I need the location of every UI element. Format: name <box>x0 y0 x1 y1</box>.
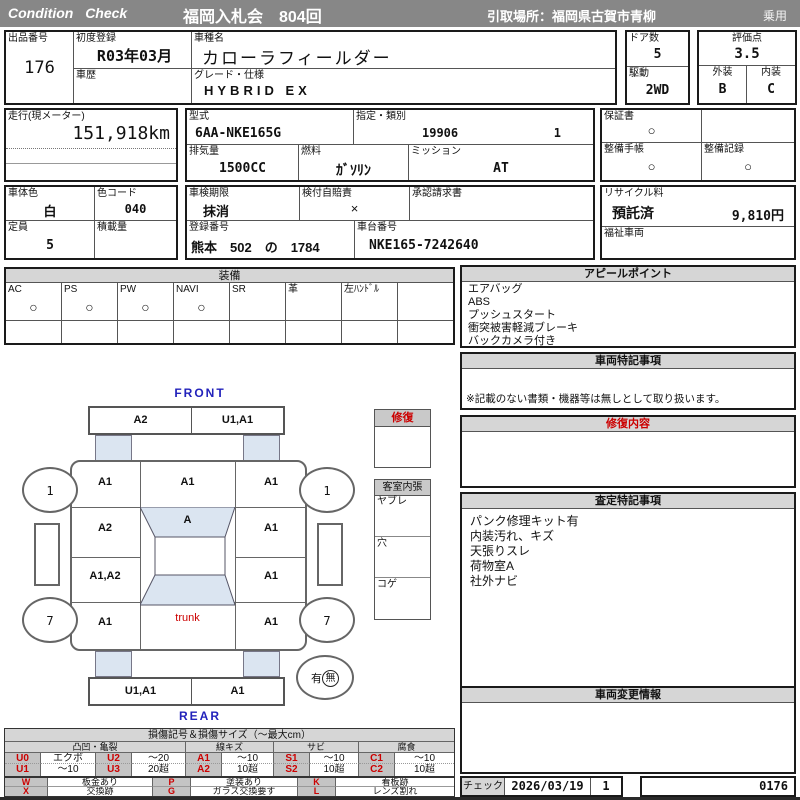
color-code-value: 040 <box>95 202 176 216</box>
body-color-cell: 車体色 白 <box>6 187 95 221</box>
equipment-cell-sr: SR <box>230 283 286 321</box>
front-bumper: A2 U1,A1 <box>88 406 285 435</box>
equipment-empty <box>6 321 62 343</box>
cabin-lining-title: 客室内張 <box>375 480 430 496</box>
legend-value: エクボ <box>41 753 96 764</box>
legend-value: ～10 <box>395 753 454 764</box>
legend-code: S2 <box>274 764 310 776</box>
cabin-row-label: 穴 <box>377 538 387 549</box>
interior-grade: C <box>747 82 795 97</box>
mileage-value: 151,918km <box>72 123 170 144</box>
drive-cell: 駆動 2WD <box>627 67 688 103</box>
reg-no-cell: 登録番号 熊本 502 の 1784 <box>187 221 355 258</box>
cabin-row-label: コゲ <box>377 579 397 590</box>
docs-box: 保証書 ○ 整備手帳 ○ 整備記録 ○ <box>600 108 796 182</box>
color-box: 車体色 白 色コード 040 定員 5 積載量 <box>4 185 178 260</box>
legend-value: 板金あり <box>48 778 153 787</box>
grade-label: グレード・仕様 <box>194 70 264 81</box>
appeal-item: ABS <box>468 296 792 309</box>
legend-value: 塗装あり <box>191 778 298 787</box>
history-label: 車歴 <box>76 70 96 81</box>
legend-value: 交換跡 <box>48 787 153 796</box>
jibaiseki-label: 検付自賠責 <box>302 188 352 199</box>
class-cell: 指定・類別 19906 1 <box>354 110 593 145</box>
legend-group-dent: 凸凹・亀裂 <box>5 742 186 753</box>
brand-logo: Condition Check <box>8 5 127 21</box>
legend-group-corrosion: 腐食 <box>359 742 454 753</box>
chassis-value: NKE165-7242640 <box>369 238 479 253</box>
divider <box>6 163 176 164</box>
assessment-item: パンク修理キット有 <box>470 514 792 529</box>
equipment-box: 装備 AC ○ PS ○ PW ○ NAVI ○ SR 革 左ﾊﾝﾄﾞﾙ <box>4 267 455 345</box>
repair-details-title: 修復内容 <box>462 417 794 432</box>
legend-value: レンズ割れ <box>336 787 454 796</box>
score-value: 3.5 <box>699 46 795 62</box>
legend-value: 10超 <box>310 764 359 776</box>
legend-group-rust: サビ <box>274 742 359 753</box>
body-divider <box>72 557 140 558</box>
inspection-label: 車検期限 <box>189 188 229 199</box>
appeal-item: プッシュスタート <box>468 309 792 322</box>
body-divider <box>236 602 305 603</box>
legend-value: ～10 <box>41 764 96 776</box>
body-divider <box>236 557 305 558</box>
grade-cell: グレード・仕様 HYBRID EX <box>192 69 615 103</box>
legend-code: U2 <box>96 753 132 764</box>
cabin-row-label: ヤブレ <box>377 496 407 507</box>
spare-no-label-circled: 無 <box>322 670 339 687</box>
equipment-label: 革 <box>288 284 298 295</box>
equipment-mark: ○ <box>174 299 229 315</box>
body-color-label: 車体色 <box>8 188 38 199</box>
wheel-front-right-code: 1 <box>323 484 330 498</box>
grade-value: HYBRID EX <box>204 83 311 98</box>
drive-label: 駆動 <box>629 68 649 79</box>
vehicle-notes-footer: ※記載のない書類・機器等は無しとして取り扱います。 <box>466 391 725 406</box>
body-color-value: 白 <box>6 201 94 220</box>
lot-number: 176 <box>6 58 73 78</box>
appeal-list: エアバッグ ABS プッシュスタート 衝突被害軽減ブレーキ バックカメラ付き <box>468 283 792 348</box>
legend-code: L <box>298 787 336 796</box>
legend-code: A2 <box>186 764 222 776</box>
equipment-mark: ○ <box>6 299 61 315</box>
exterior-label: 外装 <box>699 67 746 78</box>
legend-title-row: 損傷記号＆損傷サイズ（～最大cm） <box>5 729 454 742</box>
appeal-item: エアバッグ <box>468 283 792 296</box>
history-cell: 車歴 <box>74 69 192 103</box>
legend-group-row: 凸凹・亀裂 線キズ サビ 腐食 <box>5 742 454 753</box>
title-bar: Condition Check 福岡入札会 804回 引取場所：福岡県古賀市青柳… <box>0 0 800 27</box>
legend-code: U0 <box>5 753 41 764</box>
change-info-panel: 車両変更情報 <box>460 686 796 774</box>
fuel-value: ｶﾞｿﾘﾝ <box>299 160 408 180</box>
maint-record-mark: ○ <box>702 159 794 174</box>
displacement-cell: 排気量 1500CC <box>187 145 299 180</box>
wheel-rear-right: 7 <box>299 597 355 643</box>
assessment-panel: 査定特記事項 パンク修理キット有 内装汚れ、キズ 天張りスレ 荷物室A 社外ナビ <box>460 492 796 688</box>
inspection-cell: 車検期限 抹消 <box>187 187 300 221</box>
fuel-cell: 燃料 ｶﾞｿﾘﾝ <box>299 145 409 180</box>
class-sub: 1 <box>554 126 561 140</box>
vehicle-class: 乗用 <box>763 7 787 24</box>
legend-value: 看板跡 <box>336 778 454 787</box>
lot-label: 出品番号 <box>8 33 48 44</box>
welfare-label: 福祉車両 <box>604 228 644 239</box>
equipment-empty <box>230 321 286 343</box>
score-cell: 評価点 3.5 <box>699 32 795 66</box>
appeal-item: 衝突被害軽減ブレーキ <box>468 322 792 335</box>
capacity-cell: 定員 5 <box>6 221 95 258</box>
warranty-mark: ○ <box>602 123 701 138</box>
load-label: 積載量 <box>97 222 127 233</box>
assessment-list: パンク修理キット有 内装汚れ、キズ 天張りスレ 荷物室A 社外ナビ <box>470 514 792 589</box>
maint-record-cell: 整備記録 ○ <box>702 143 794 180</box>
chassis-cell: 車台番号 NKE165-7242640 <box>355 221 593 258</box>
roof-shape <box>155 537 225 575</box>
check-date: 2026/03/19 <box>505 778 591 795</box>
class-label: 指定・類別 <box>356 111 406 122</box>
body-divider <box>72 507 140 508</box>
wheel-front-right: 1 <box>299 467 355 513</box>
model-code-label: 型式 <box>189 111 209 122</box>
recycle-label: リサイクル料 <box>604 188 664 199</box>
registration-box: 車検期限 抹消 検付自賠責 × 承認請求書 登録番号 熊本 502 の 1784… <box>185 185 595 260</box>
model-label: 車種名 <box>194 33 224 44</box>
vehicle-notes-panel: 車両特記事項 ※記載のない書類・機器等は無しとして取り扱います。 <box>460 352 796 410</box>
color-code-cell: 色コード 040 <box>95 187 176 221</box>
body-divider <box>236 507 305 508</box>
wheel-rear-left: 7 <box>22 597 78 643</box>
legend-code: P <box>153 778 191 787</box>
appeal-title: アピールポイント <box>462 267 794 282</box>
legend-code: G <box>153 787 191 796</box>
windshield-label: A <box>140 514 235 526</box>
legend-code: K <box>298 778 336 787</box>
right-side-guard <box>317 523 343 586</box>
mileage-box: 走行(現メーター) 151,918km <box>4 108 178 182</box>
welfare-cell: 福祉車両 <box>602 227 794 258</box>
divider <box>6 148 176 149</box>
class-no: 19906 <box>422 126 458 140</box>
wheel-rear-right-code: 7 <box>323 614 330 628</box>
repair-flag-title: 修復 <box>375 410 430 427</box>
legend-value: ～10 <box>310 753 359 764</box>
front-bumper-left-panel: A2 <box>90 408 192 433</box>
displacement-label: 排気量 <box>189 146 219 157</box>
cabin-lining-box: 客室内張 ヤブレ 穴 コゲ <box>374 479 431 620</box>
hood-label: A1 <box>140 476 235 488</box>
model-cell: 車種名 カローラフィールダー <box>192 32 615 69</box>
mission-cell: ミッション AT <box>409 145 593 180</box>
left-front-fender-label: A1 <box>70 476 140 488</box>
wheel-front-left: 1 <box>22 467 78 513</box>
warranty-cell: 保証書 ○ <box>602 110 702 143</box>
serial-box: 0176 <box>640 776 796 797</box>
first-reg-label: 初度登録 <box>76 33 116 44</box>
lot-cell: 出品番号 176 <box>6 32 74 103</box>
auction-title: 福岡入札会 804回 <box>183 3 322 27</box>
left-front-door-label: A2 <box>70 522 140 534</box>
check-label: チェック <box>462 778 505 795</box>
legend-value: ～10 <box>222 753 274 764</box>
assessment-title: 査定特記事項 <box>462 494 794 509</box>
interior-label: 内装 <box>747 67 795 78</box>
equipment-label: PW <box>120 284 136 295</box>
maint-book-label: 整備手帳 <box>604 144 644 155</box>
equipment-empty <box>62 321 118 343</box>
equipment-label: 左ﾊﾝﾄﾞﾙ <box>344 284 379 295</box>
drive-value: 2WD <box>627 83 688 98</box>
legend-code: U1 <box>5 764 41 776</box>
equipment-empty <box>174 321 230 343</box>
legend-table-2: W 板金あり P 塗装あり K 看板跡 X 交換跡 G ガラス交換要す L レン… <box>4 777 455 797</box>
cabin-row-hole: 穴 <box>375 536 430 577</box>
rear-bumper-left-panel: U1,A1 <box>90 679 192 704</box>
right-rear-fender-label: A1 <box>235 616 307 628</box>
rear-left-light <box>95 651 132 677</box>
legend-code-row-1: W 板金あり P 塗装あり K 看板跡 <box>5 778 454 787</box>
approval-cell: 承認請求書 <box>410 187 593 221</box>
legend-value: ～20 <box>132 753 186 764</box>
cabin-row-tear: ヤブレ <box>375 495 430 536</box>
legend-value: 10超 <box>395 764 454 776</box>
legend-value: 10超 <box>222 764 274 776</box>
assessment-item: 社外ナビ <box>470 574 792 589</box>
left-side-guard <box>34 523 60 586</box>
exterior-grade: B <box>699 82 746 97</box>
equipment-cell-extra <box>398 283 453 321</box>
legend-table: 損傷記号＆損傷サイズ（～最大cm） 凸凹・亀裂 線キズ サビ 腐食 U0 エクボ… <box>4 728 455 777</box>
equipment-cell-ps: PS ○ <box>62 283 118 321</box>
equipment-title: 装備 <box>6 269 453 283</box>
chassis-label: 車台番号 <box>357 222 397 233</box>
jibaiseki-mark: × <box>300 201 409 216</box>
rear-bumper: U1,A1 A1 <box>88 677 285 706</box>
appeal-item: バックカメラ付き <box>468 335 792 348</box>
legend-code: A1 <box>186 753 222 764</box>
condition-check-sheet: Condition Check 福岡入札会 804回 引取場所：福岡県古賀市青柳… <box>0 0 800 800</box>
spare-tire-indicator: 有無 <box>296 655 354 700</box>
interior-cell: 内装 C <box>747 66 795 103</box>
capacity-label: 定員 <box>8 222 28 233</box>
equipment-cell-pw: PW ○ <box>118 283 174 321</box>
doors-drive-box: ドア数 5 駆動 2WD <box>625 30 690 105</box>
equipment-label: SR <box>232 284 246 295</box>
maint-record-label: 整備記録 <box>704 144 744 155</box>
diagram-front-label: FRONT <box>138 386 262 400</box>
equipment-empty <box>286 321 342 343</box>
right-front-fender-label: A1 <box>235 476 307 488</box>
mileage-label: 走行(現メーター) <box>8 111 85 122</box>
front-bumper-right-panel: U1,A1 <box>192 408 283 433</box>
rear-window-shape <box>140 575 235 605</box>
pickup-location: 引取場所：福岡県古賀市青柳 <box>487 6 656 25</box>
doors-cell: ドア数 5 <box>627 32 688 67</box>
legend-value: ガラス交換要す <box>191 787 298 796</box>
equipment-cell-navi: NAVI ○ <box>174 283 230 321</box>
model-code-value: 6AA-NKE165G <box>195 126 281 141</box>
legend-code: S1 <box>274 753 310 764</box>
capacity-value: 5 <box>6 238 94 253</box>
first-reg-cell: 初度登録 R03年03月 <box>74 32 192 69</box>
recycle-box: リサイクル料 預託済 9,810円 福祉車両 <box>600 185 796 260</box>
left-rear-fender-label: A1 <box>70 616 140 628</box>
first-reg-value: R03年03月 <box>80 45 189 66</box>
legend-code: U3 <box>96 764 132 776</box>
doors-value: 5 <box>627 47 688 62</box>
assessment-item: 内装汚れ、キズ <box>470 529 792 544</box>
legend-code: C2 <box>359 764 395 776</box>
front-left-light <box>95 435 132 461</box>
equipment-cell-ac: AC ○ <box>6 283 62 321</box>
legend-code: X <box>5 787 48 796</box>
rear-bumper-right-panel: A1 <box>192 679 283 704</box>
equipment-mark: ○ <box>62 299 117 315</box>
empty-cell <box>702 110 794 143</box>
warranty-label: 保証書 <box>604 111 634 122</box>
inspection-value: 抹消 <box>203 201 229 220</box>
equipment-empty <box>118 321 174 343</box>
appeal-panel: アピールポイント エアバッグ ABS プッシュスタート 衝突被害軽減ブレーキ バ… <box>460 265 796 348</box>
displacement-value: 1500CC <box>187 161 298 176</box>
legend-value: 20超 <box>132 764 186 776</box>
equipment-label: NAVI <box>176 284 199 295</box>
legend-code-row-2: X 交換跡 G ガラス交換要す L レンズ割れ <box>5 787 454 796</box>
mission-value: AT <box>409 161 593 176</box>
cabin-row-burn: コゲ <box>375 577 430 617</box>
reg-no-value: 熊本 502 の 1784 <box>191 237 320 256</box>
legend-group-scratch: 線キズ <box>186 742 274 753</box>
score-label: 評価点 <box>699 33 795 44</box>
spec-box: 型式 6AA-NKE165G 指定・類別 19906 1 排気量 1500CC … <box>185 108 595 182</box>
equipment-cell-lhd: 左ﾊﾝﾄﾞﾙ <box>342 283 398 321</box>
jibaiseki-cell: 検付自賠責 × <box>300 187 410 221</box>
spare-yes-label: 有 <box>311 673 322 685</box>
recycle-status: 預託済 <box>612 203 654 223</box>
maint-book-mark: ○ <box>602 159 701 174</box>
wheel-front-left-code: 1 <box>46 484 53 498</box>
load-cell: 積載量 <box>95 221 176 258</box>
repair-details-panel: 修復内容 <box>460 415 796 488</box>
recycle-fee: 9,810円 <box>732 205 784 224</box>
rear-right-light <box>243 651 280 677</box>
legend-code: W <box>5 778 48 787</box>
legend-data-row-1: U0 エクボ U2 ～20 A1 ～10 S1 ～10 C1 ～10 <box>5 753 454 764</box>
check-count: 1 <box>591 778 621 795</box>
wheel-rear-left-code: 7 <box>46 614 53 628</box>
vehicle-info-table: 出品番号 176 初度登録 R03年03月 車歴 車種名 カローラフィールダー … <box>4 30 617 105</box>
model-code-cell: 型式 6AA-NKE165G <box>187 110 354 145</box>
doors-label: ドア数 <box>629 33 659 44</box>
change-info-title: 車両変更情報 <box>462 688 794 703</box>
color-code-label: 色コード <box>97 188 137 199</box>
mission-label: ミッション <box>411 146 461 157</box>
equipment-empty <box>342 321 398 343</box>
diagram-rear-label: REAR <box>138 709 262 723</box>
equipment-label: PS <box>64 284 77 295</box>
check-serial: 0176 <box>759 778 788 795</box>
legend-title: 損傷記号＆損傷サイズ（～最大cm） <box>5 729 454 742</box>
check-box: チェック 2026/03/19 1 <box>460 776 623 797</box>
right-front-door-label: A1 <box>235 522 307 534</box>
legend-data-row-2: U1 ～10 U3 20超 A2 10超 S2 10超 C2 10超 <box>5 764 454 776</box>
exterior-cell: 外装 B <box>699 66 747 103</box>
repair-flag-box: 修復 <box>374 409 431 468</box>
front-right-light <box>243 435 280 461</box>
equipment-mark: ○ <box>118 299 173 315</box>
equipment-cell-leather: 革 <box>286 283 342 321</box>
model-name: カローラフィールダー <box>202 44 392 69</box>
assessment-item: 荷物室A <box>470 559 792 574</box>
score-box: 評価点 3.5 外装 B 内装 C <box>697 30 797 105</box>
maint-book-cell: 整備手帳 ○ <box>602 143 702 180</box>
right-rear-door-label: A1 <box>235 570 307 582</box>
fuel-label: 燃料 <box>301 146 321 157</box>
left-rear-door-label: A1,A2 <box>70 570 140 582</box>
reg-no-label: 登録番号 <box>189 222 229 233</box>
equipment-label: AC <box>8 284 22 295</box>
body-divider <box>72 602 140 603</box>
legend-code: C1 <box>359 753 395 764</box>
vehicle-notes-title: 車両特記事項 <box>462 354 794 369</box>
approval-label: 承認請求書 <box>412 188 462 199</box>
recycle-cell: リサイクル料 預託済 9,810円 <box>602 187 794 227</box>
assessment-item: 天張りスレ <box>470 544 792 559</box>
trunk-label: trunk <box>140 612 235 624</box>
